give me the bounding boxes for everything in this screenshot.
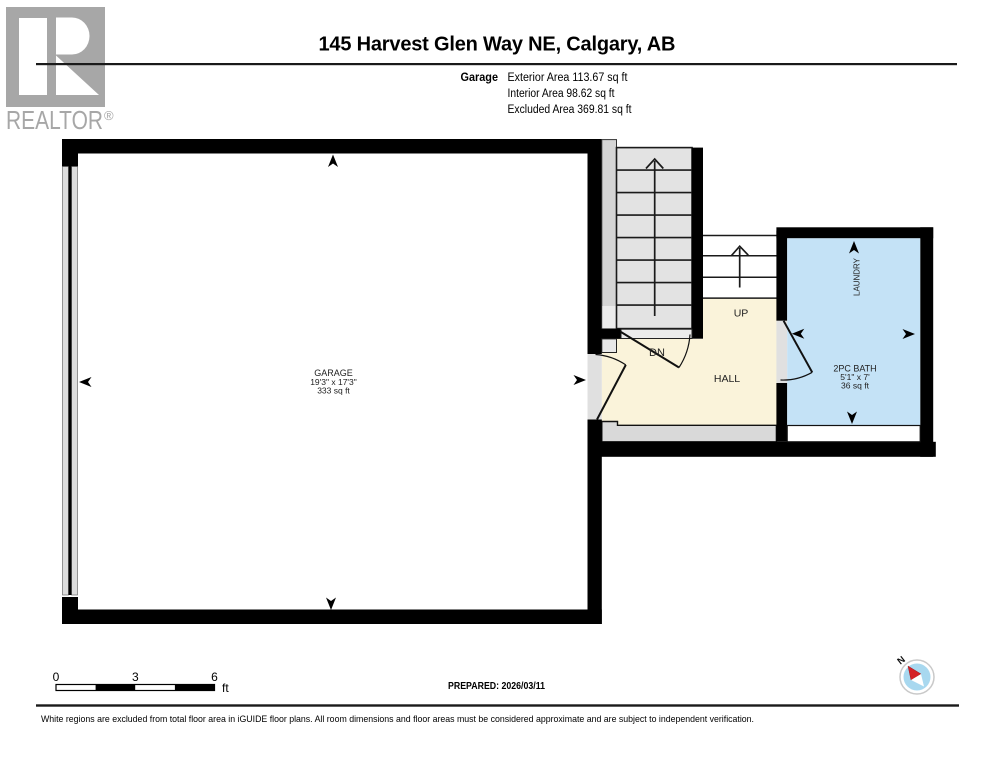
svg-text:Interior Area 98.62 sq ft: Interior Area 98.62 sq ft bbox=[508, 88, 616, 100]
svg-text:HALL: HALL bbox=[714, 373, 740, 385]
svg-text:333 sq ft: 333 sq ft bbox=[317, 386, 350, 396]
svg-text:®: ® bbox=[104, 108, 114, 123]
svg-text:Excluded Area 369.81 sq ft: Excluded Area 369.81 sq ft bbox=[508, 104, 633, 116]
svg-text:Garage: Garage bbox=[461, 72, 499, 84]
svg-text:3: 3 bbox=[132, 670, 139, 684]
svg-text:LAUNDRY: LAUNDRY bbox=[852, 258, 862, 296]
svg-text:ft: ft bbox=[222, 681, 229, 695]
svg-text:Exterior Area 113.67 sq ft: Exterior Area 113.67 sq ft bbox=[508, 72, 629, 84]
svg-text:145 Harvest Glen Way NE, Calga: 145 Harvest Glen Way NE, Calgary, AB bbox=[319, 34, 676, 56]
svg-text:White regions are excluded fro: White regions are excluded from total fl… bbox=[41, 714, 754, 724]
svg-text:6: 6 bbox=[211, 670, 218, 684]
svg-text:36 sq ft: 36 sq ft bbox=[841, 381, 870, 391]
svg-text:PREPARED: 2026/03/11: PREPARED: 2026/03/11 bbox=[448, 681, 545, 692]
svg-text:DN: DN bbox=[649, 347, 665, 359]
svg-text:UP: UP bbox=[734, 308, 749, 320]
svg-text:0: 0 bbox=[53, 670, 60, 684]
svg-text:REALTOR: REALTOR bbox=[6, 105, 103, 135]
